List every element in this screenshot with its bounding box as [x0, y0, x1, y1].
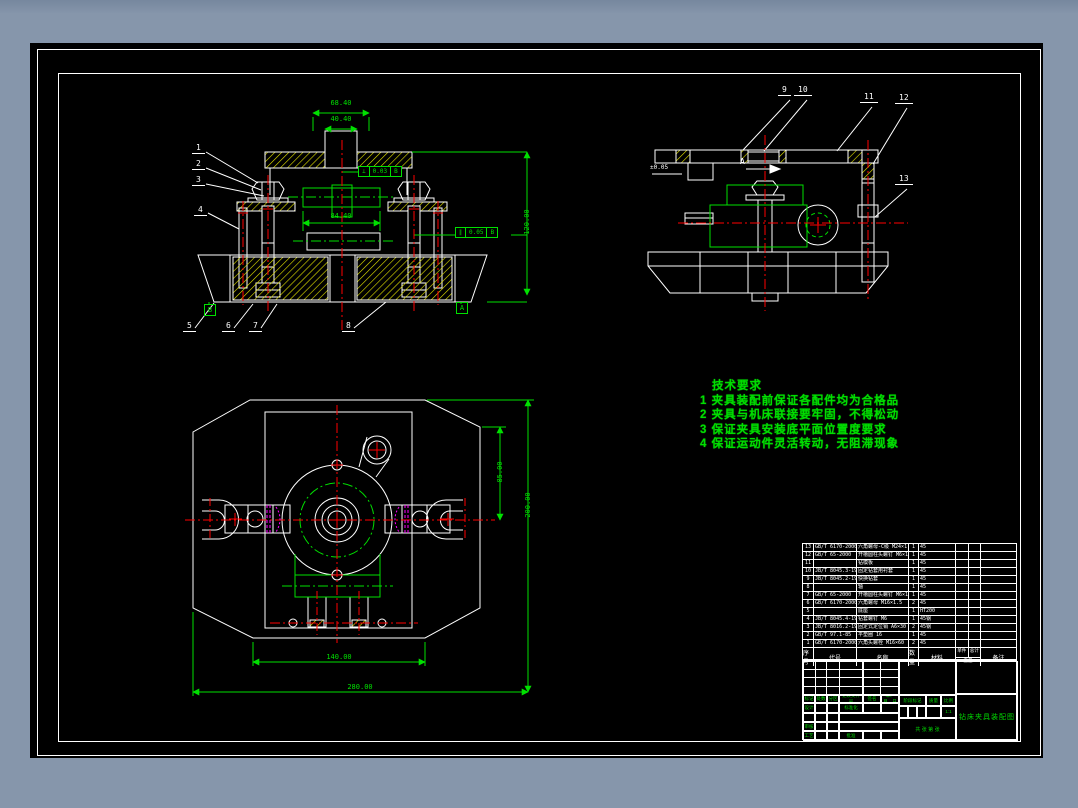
part-label-13: 13: [895, 174, 913, 185]
bom-cell: 六角头螺栓 M16×60: [857, 640, 909, 647]
bom-table: 13GB/T 6170-2000六角螺母-C级 M24×1.514512GB/T…: [802, 543, 1017, 660]
dim-plan-right-tall: 200.00: [524, 483, 532, 527]
role-standardize: 标准化: [839, 703, 863, 713]
bom-cell: 1: [909, 608, 919, 615]
signature-cell: [863, 731, 881, 741]
bom-cell: GB/T 6170-2000: [814, 600, 857, 607]
bom-cell: GB/T 6170-2000: [814, 544, 857, 551]
bom-cell: 1: [909, 584, 919, 591]
bom-cell: [814, 608, 857, 615]
revision-grid-line: [803, 669, 899, 678]
role-audit: 审核: [803, 722, 815, 731]
bom-cell: [969, 608, 981, 615]
part-label-7: 7: [249, 321, 262, 332]
bom-cell: 13: [803, 544, 814, 551]
bom-row: 11钻模板145: [803, 560, 1016, 568]
role-design: 设计: [803, 703, 815, 713]
bom-cell: JB/T 8045.2-1999: [814, 576, 857, 583]
bom-cell: 45: [919, 568, 956, 575]
part-label-3: 3: [192, 175, 205, 186]
tech-req-item: 3 保证夹具安装底平面位置度要求: [700, 423, 899, 438]
dim-front-top-outer: 68.40: [311, 99, 371, 107]
bom-cell: 2: [909, 624, 919, 631]
stage-box: [908, 706, 917, 718]
bom-row: 9JB/T 8045.2-1999快换钻套145: [803, 576, 1016, 584]
bom-row: 13GB/T 6170-2000六角螺母-C级 M24×1.5145: [803, 544, 1016, 552]
bom-cell: 轴: [857, 584, 909, 591]
bom-cell: 3: [803, 624, 814, 631]
bom-row: 10JB/T 8045.3-1999固定钻套用衬套145: [803, 568, 1016, 576]
dim-plan-bottom-outer: 280.00: [330, 683, 390, 691]
bom-cell: 1: [909, 616, 919, 623]
scale-value: 1:1: [941, 706, 956, 718]
date-cell: [827, 722, 839, 731]
bom-cell: [956, 560, 969, 567]
role-approve: 批准: [839, 731, 863, 741]
bom-cell: 45: [919, 584, 956, 591]
dim-front-middle: 84.40: [311, 212, 371, 220]
bom-cell: 45: [919, 592, 956, 599]
bom-cell: 45: [919, 552, 956, 559]
bom-cell: JB/T 8016.2-1999: [814, 624, 857, 631]
dim-plan-bottom-inner: 140.00: [309, 653, 369, 661]
bom-cell: 10: [803, 568, 814, 575]
part-label-12: 12: [895, 93, 913, 104]
bom-cell: 六角螺母 M16×1.5: [857, 600, 909, 607]
bom-cell: 12: [803, 552, 814, 559]
bom-cell: 45: [919, 640, 956, 647]
bom-cell: 6: [803, 600, 814, 607]
bom-cell: [981, 592, 1016, 599]
bom-cell: [956, 608, 969, 615]
bom-cell: [814, 584, 857, 591]
blank-cell: [803, 713, 815, 722]
bom-cell: 钻套螺钉 M6: [857, 616, 909, 623]
bom-cell: [969, 632, 981, 639]
revision-grid-line: [803, 686, 899, 695]
bom-cell: 45钢: [919, 624, 956, 631]
tolerance-note: ±0.05: [650, 164, 668, 171]
bom-cell: [956, 600, 969, 607]
bom-cell: 2: [909, 600, 919, 607]
bom-cell: 45: [919, 600, 956, 607]
bom-cell: JB/T 8045.4-1999: [814, 616, 857, 623]
bom-cell: GB/T 6170-2000: [814, 640, 857, 647]
bom-cell: [969, 592, 981, 599]
bom-row: 8轴145: [803, 584, 1016, 592]
stage-box: [899, 706, 908, 718]
bom-cell: [956, 576, 969, 583]
fcf1-symbol: ⊥: [359, 167, 370, 176]
rev-label-zone: 分区: [827, 695, 839, 703]
fcf1-value: 0.03: [370, 167, 391, 176]
drawing-number-box: [956, 661, 1018, 694]
blank-cell: [839, 722, 899, 731]
bom-cell: 钻模板: [857, 560, 909, 567]
bom-cell: 1: [909, 552, 919, 559]
blank-cell: [827, 713, 839, 722]
stage-mark-label: 阶段标记: [899, 695, 926, 706]
bom-cell: [814, 560, 857, 567]
dim-front-top-inner: 40.40: [311, 115, 371, 123]
rev-label-date: 年、月、日: [881, 695, 899, 703]
bom-row: 7GB/T 65-2000开槽圆柱头螺钉 M6×16145: [803, 592, 1016, 600]
signature-cell: [815, 722, 827, 731]
bom-cell: JB/T 8045.3-1999: [814, 568, 857, 575]
bom-cell: 1: [803, 640, 814, 647]
fcf2-datum: B: [487, 228, 497, 237]
bom-row: 12GB/T 65-2000开槽圆柱头螺钉 M6×16145: [803, 552, 1016, 560]
bom-cell: 8: [803, 584, 814, 591]
part-label-9: 9: [778, 85, 791, 96]
bom-cell: 固定式定位销 A6×30: [857, 624, 909, 631]
sheet-info: 共 张 第 张: [899, 718, 956, 741]
bom-cell: 快换钻套: [857, 576, 909, 583]
bom-cell: 5: [803, 608, 814, 615]
bom-cell: [969, 584, 981, 591]
bom-cell: 1: [909, 568, 919, 575]
bom-cell: 7: [803, 592, 814, 599]
bom-cell: [956, 592, 969, 599]
part-label-8: 8: [342, 321, 355, 332]
bom-header-weight-unit: 单件: [956, 648, 969, 657]
bom-cell: 1: [909, 592, 919, 599]
bom-cell: [981, 600, 1016, 607]
section-arrow-label: A: [740, 157, 745, 166]
bom-row: 5底座1HT200: [803, 608, 1016, 616]
bom-cell: 45: [919, 576, 956, 583]
bom-cell: [969, 560, 981, 567]
rev-label-mark: 标记: [803, 695, 815, 703]
rev-label-count: 处数: [815, 695, 827, 703]
part-label-2: 2: [192, 159, 205, 170]
role-process: 工艺: [803, 731, 815, 741]
bom-cell: [969, 544, 981, 551]
bom-row: 1GB/T 6170-2000六角头螺栓 M16×60245: [803, 640, 1016, 648]
bom-cell: 1: [909, 576, 919, 583]
scale-label: 比例: [941, 695, 956, 706]
part-label-4: 4: [194, 205, 207, 216]
technical-requirements: 技术要求 1 夹具装配前保证各配件均为合格品2 夹具与机床联接要牢固，不得松动3…: [700, 379, 899, 452]
bom-cell: [956, 584, 969, 591]
bom-cell: [981, 552, 1016, 559]
bom-cell: 开槽圆柱头螺钉 M6×16: [857, 592, 909, 599]
fcf1-datum: B: [391, 167, 401, 176]
bom-cell: [981, 640, 1016, 647]
part-label-6: 6: [222, 321, 235, 332]
bom-cell: [981, 608, 1016, 615]
bom-rows: 13GB/T 6170-2000六角螺母-C级 M24×1.514512GB/T…: [803, 544, 1016, 648]
rev-label-signature: 签名: [863, 695, 881, 703]
bom-cell: [969, 616, 981, 623]
bom-cell: [969, 600, 981, 607]
bom-cell: 45: [919, 632, 956, 639]
bom-cell: 45: [919, 544, 956, 551]
bom-cell: [956, 624, 969, 631]
bom-cell: 1: [909, 560, 919, 567]
bom-cell: 底座: [857, 608, 909, 615]
drawing-sheet: 1 2 3 4 5 6 7 8 9 10 11 12 13 68.40 40.4…: [30, 43, 1043, 758]
tech-req-item: 4 保证运动件灵活转动，无阻滞现象: [700, 437, 899, 452]
drawing-title: 钻床夹具装配图: [956, 694, 1018, 741]
bom-row: 6GB/T 6170-2000六角螺母 M16×1.5245: [803, 600, 1016, 608]
part-label-1: 1: [192, 143, 205, 154]
dim-plan-right-small: 85.00: [496, 450, 504, 494]
bom-cell: 45: [919, 560, 956, 567]
bom-cell: [969, 568, 981, 575]
front-view: [195, 113, 527, 330]
bom-cell: 2: [909, 640, 919, 647]
dim-front-right: 120.00: [523, 200, 531, 244]
bom-cell: [981, 544, 1016, 551]
bom-cell: [969, 552, 981, 559]
bom-cell: 45钢: [919, 616, 956, 623]
bom-cell: [956, 568, 969, 575]
bom-cell: 固定钻套用衬套: [857, 568, 909, 575]
blank-cell: [815, 713, 827, 722]
bom-cell: [981, 624, 1016, 631]
weight-label: 质量: [926, 695, 941, 706]
fcf2-value: 0.05: [466, 228, 487, 237]
rev-label-docno: 更改文件号: [839, 695, 863, 703]
feature-control-frame-2: ∥ 0.05 B: [455, 227, 498, 238]
part-label-5: 5: [183, 321, 196, 332]
part-label-11: 11: [860, 92, 878, 103]
bom-cell: [981, 560, 1016, 567]
bom-cell: [981, 584, 1016, 591]
bom-cell: [969, 640, 981, 647]
fcf2-symbol: ∥: [456, 228, 466, 237]
bom-cell: 2: [803, 632, 814, 639]
bom-cell: 4: [803, 616, 814, 623]
bom-cell: [981, 568, 1016, 575]
bom-cell: [981, 632, 1016, 639]
bom-row: 4JB/T 8045.4-1999钻套螺钉 M6145钢: [803, 616, 1016, 624]
bom-cell: [969, 624, 981, 631]
cad-viewer-background: 1 2 3 4 5 6 7 8 9 10 11 12 13 68.40 40.4…: [0, 0, 1078, 808]
title-block: 标记 处数 分区 更改文件号 签名 年、月、日 设计 标准化 审核 工艺: [802, 660, 1017, 740]
signature-cell: [815, 703, 827, 713]
bom-cell: [969, 576, 981, 583]
signature-cell: [863, 703, 881, 713]
stage-box: [917, 706, 926, 718]
bom-cell: 1: [909, 544, 919, 551]
date-cell: [881, 731, 899, 741]
bom-cell: GB/T 65-2000: [814, 592, 857, 599]
date-cell: [881, 703, 899, 713]
date-cell: [827, 731, 839, 741]
bom-cell: 六角螺母-C级 M24×1.5: [857, 544, 909, 551]
bom-header-weight-total: 总计: [969, 648, 981, 657]
bom-cell: [981, 616, 1016, 623]
tech-req-title: 技术要求: [712, 379, 899, 394]
bom-cell: [956, 632, 969, 639]
tech-req-item: 2 夹具与机床联接要牢固，不得松动: [700, 408, 899, 423]
part-label-10: 10: [794, 85, 812, 96]
bom-cell: [956, 544, 969, 551]
datum-label-b: B: [204, 304, 216, 316]
signature-cell: [815, 731, 827, 741]
tech-req-item: 1 夹具装配前保证各配件均为合格品: [700, 394, 899, 409]
datum-label-a: A: [456, 302, 468, 314]
bom-cell: [981, 576, 1016, 583]
bom-cell: [956, 616, 969, 623]
side-view: [648, 100, 908, 311]
date-cell: [827, 703, 839, 713]
weight-value: [926, 706, 941, 718]
bom-cell: [956, 552, 969, 559]
feature-control-frame-1: ⊥ 0.03 B: [358, 166, 402, 177]
bom-row: 3JB/T 8016.2-1999固定式定位销 A6×30245钢: [803, 624, 1016, 632]
stage-blank-box: [899, 661, 956, 695]
bom-cell: 开槽圆柱头螺钉 M6×16: [857, 552, 909, 559]
bom-cell: 11: [803, 560, 814, 567]
bom-row: 2GB/T 97.1-85平垫圈 16145: [803, 632, 1016, 640]
plan-view: [185, 400, 534, 696]
bom-cell: 9: [803, 576, 814, 583]
blank-cell: [839, 713, 899, 722]
bom-cell: 平垫圈 16: [857, 632, 909, 639]
bom-cell: GB/T 97.1-85: [814, 632, 857, 639]
bom-cell: [956, 640, 969, 647]
bom-cell: HT200: [919, 608, 956, 615]
bom-cell: 1: [909, 632, 919, 639]
bom-cell: GB/T 65-2000: [814, 552, 857, 559]
